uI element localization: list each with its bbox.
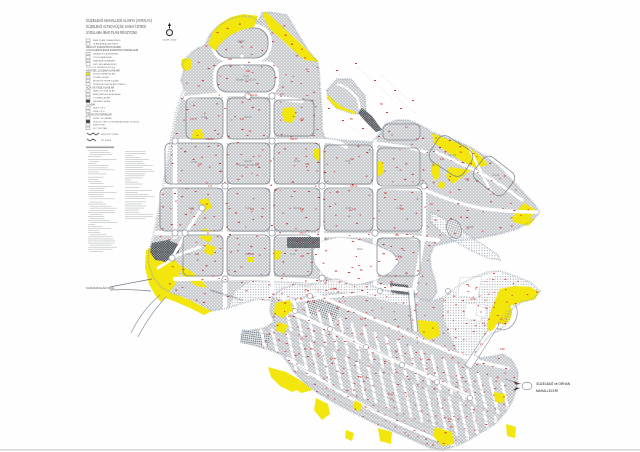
svg-text:158: 158 (305, 163, 310, 166)
svg-text:TESCİLLİ YAPI / KORUNACAK AĞAÇ: TESCİLLİ YAPI / KORUNACAK AĞAÇ DOKUSU (93, 120, 140, 123)
svg-text:ÜA-11: ÜA-11 (492, 173, 500, 177)
svg-text:150: 150 (350, 158, 355, 161)
svg-text:Toplam:17.531 m²: Toplam:17.531 m² (236, 78, 257, 82)
svg-text:164: 164 (300, 118, 305, 121)
svg-text:PARK VE YEŞİL ALAN: PARK VE YEŞİL ALAN (93, 90, 115, 93)
svg-text:MÜLKİYET SINIRI: MÜLKİYET SINIRI (101, 133, 119, 136)
svg-text:336.40: 336.40 (350, 185, 358, 188)
svg-text:MEZARLIK ALANI: MEZARLIK ALANI (93, 100, 111, 103)
svg-text:T-01: T-01 (377, 127, 383, 131)
svg-text:DERE / SU KANALI: DERE / SU KANALI (93, 117, 112, 120)
svg-text:MAHALLELERİ: MAHALLELERİ (536, 388, 558, 393)
svg-text:Ü-12: Ü-12 (290, 252, 296, 256)
svg-text:Ü-10: Ü-10 (185, 252, 191, 256)
svg-text:129: 129 (440, 158, 445, 161)
svg-text:124: 124 (465, 178, 470, 181)
svg-text:İMAR PLANI ONAMA SINIRI: İMAR PLANI ONAMA SINIRI (93, 39, 121, 42)
svg-text:GÜZELBAĞ ALTSO KÜÇÜK SANAYİ Sİ: GÜZELBAĞ ALTSO KÜÇÜK SANAYİ SİTESİ (86, 24, 146, 29)
svg-text:ÜA-10: ÜA-10 (448, 153, 456, 157)
svg-text:KARAMANLAR MAH.: KARAMANLAR MAH. (86, 286, 115, 290)
svg-text:182: 182 (228, 58, 233, 61)
svg-text:OTOPARK ALANI: OTOPARK ALANI (93, 97, 110, 100)
svg-text:ÜA-08: ÜA-08 (244, 159, 252, 163)
svg-text:GÜZELBAĞ MAHALLESİ ALANYA (ANT: GÜZELBAĞ MAHALLESİ ALANYA (ANTALYA) (86, 18, 152, 23)
svg-text:DİĞER GÖSTERİMLER: DİĞER GÖSTERİMLER (86, 113, 112, 116)
svg-text:12: 12 (482, 321, 486, 325)
svg-text:İMAR ADA NUMARASI: İMAR ADA NUMARASI (93, 59, 115, 62)
svg-text:YAPI YAKLAŞMA SINIRI: YAPI YAKLAŞMA SINIRI (93, 63, 117, 66)
svg-text:133: 133 (398, 256, 403, 259)
svg-text:163: 163 (250, 208, 255, 211)
svg-text:ULAŞIM: ULAŞIM (86, 103, 95, 106)
svg-text:Ü-02: Ü-02 (243, 74, 249, 78)
svg-text:169: 169 (255, 163, 260, 166)
svg-text:340.00: 340.00 (206, 138, 214, 141)
svg-text:GÜZELBAĞ ve ORHAN: GÜZELBAĞ ve ORHAN (536, 381, 571, 386)
svg-text:146: 146 (300, 255, 305, 258)
svg-text:155: 155 (250, 253, 255, 256)
svg-text:Ü-03: Ü-03 (191, 160, 197, 164)
svg-text:SİT SINIRI: SİT SINIRI (101, 139, 112, 142)
svg-text:301.50: 301.50 (330, 288, 338, 291)
svg-text:332: 332 (395, 234, 400, 237)
svg-text:BELEDİYE HİZMET ALANI: BELEDİYE HİZMET ALANI (93, 80, 119, 83)
svg-text:KOT NOKTASI: KOT NOKTASI (93, 127, 108, 130)
svg-text:173: 173 (208, 185, 213, 188)
svg-text:180: 180 (246, 70, 251, 73)
svg-text:TAŞIT YOLU: TAŞIT YOLU (93, 107, 106, 110)
svg-text:172: 172 (198, 163, 203, 166)
svg-text:ÜA-07: ÜA-07 (244, 115, 252, 119)
svg-text:AĞAÇLANDIRILACAK ALAN: AĞAÇLANDIRILACAK ALAN (93, 93, 121, 96)
svg-text:25 m: 25 m (300, 232, 305, 235)
svg-text:EĞİM YÖNÜ: EĞİM YÖNÜ (93, 124, 106, 127)
svg-text:Ü-08: Ü-08 (345, 206, 351, 210)
svg-text:167: 167 (190, 208, 195, 211)
svg-text:178: 178 (240, 118, 245, 121)
svg-text:176: 176 (190, 118, 195, 121)
svg-text:UYGULAMA İMAR PLANI REVİZYONU: UYGULAMA İMAR PLANI REVİZYONU (86, 30, 137, 35)
svg-text:9.80: 9.80 (500, 348, 505, 351)
svg-text:TİCARET ALANI: TİCARET ALANI (93, 76, 109, 79)
svg-text:ÖLÇEK: 1/1000: ÖLÇEK: 1/1000 (162, 39, 177, 42)
svg-text:171: 171 (280, 93, 285, 96)
svg-text:BHA: BHA (357, 247, 363, 251)
svg-text:KENTSEL ÇALIŞMA ALANLARI: KENTSEL ÇALIŞMA ALANLARI (86, 69, 120, 72)
svg-text:160: 160 (195, 253, 200, 256)
svg-text:119: 119 (490, 193, 494, 196)
svg-text:137: 137 (400, 208, 405, 211)
svg-text:338.50: 338.50 (290, 138, 298, 141)
svg-text:KÜÇÜK SANAYİ ALANI: KÜÇÜK SANAYİ ALANI (93, 73, 116, 76)
svg-text:141: 141 (352, 208, 357, 211)
svg-text:AÇIK VE YEŞİL ALANLAR: AÇIK VE YEŞİL ALANLAR (86, 86, 114, 89)
svg-text:341.20: 341.20 (250, 94, 258, 97)
svg-text:Ü-04: Ü-04 (294, 159, 300, 163)
svg-text:UYGULAMAYA ESAS KADASTRO PARSE: UYGULAMAYA ESAS KADASTRO PARSELLERİ (86, 49, 139, 52)
svg-text:12.50: 12.50 (470, 298, 477, 301)
svg-text:KADASTRO ADA/PARSEL: KADASTRO ADA/PARSEL (93, 53, 119, 56)
svg-text:UYGULAMA ADASI: UYGULAMA ADASI (93, 56, 112, 59)
svg-text:149: 149 (300, 208, 305, 211)
